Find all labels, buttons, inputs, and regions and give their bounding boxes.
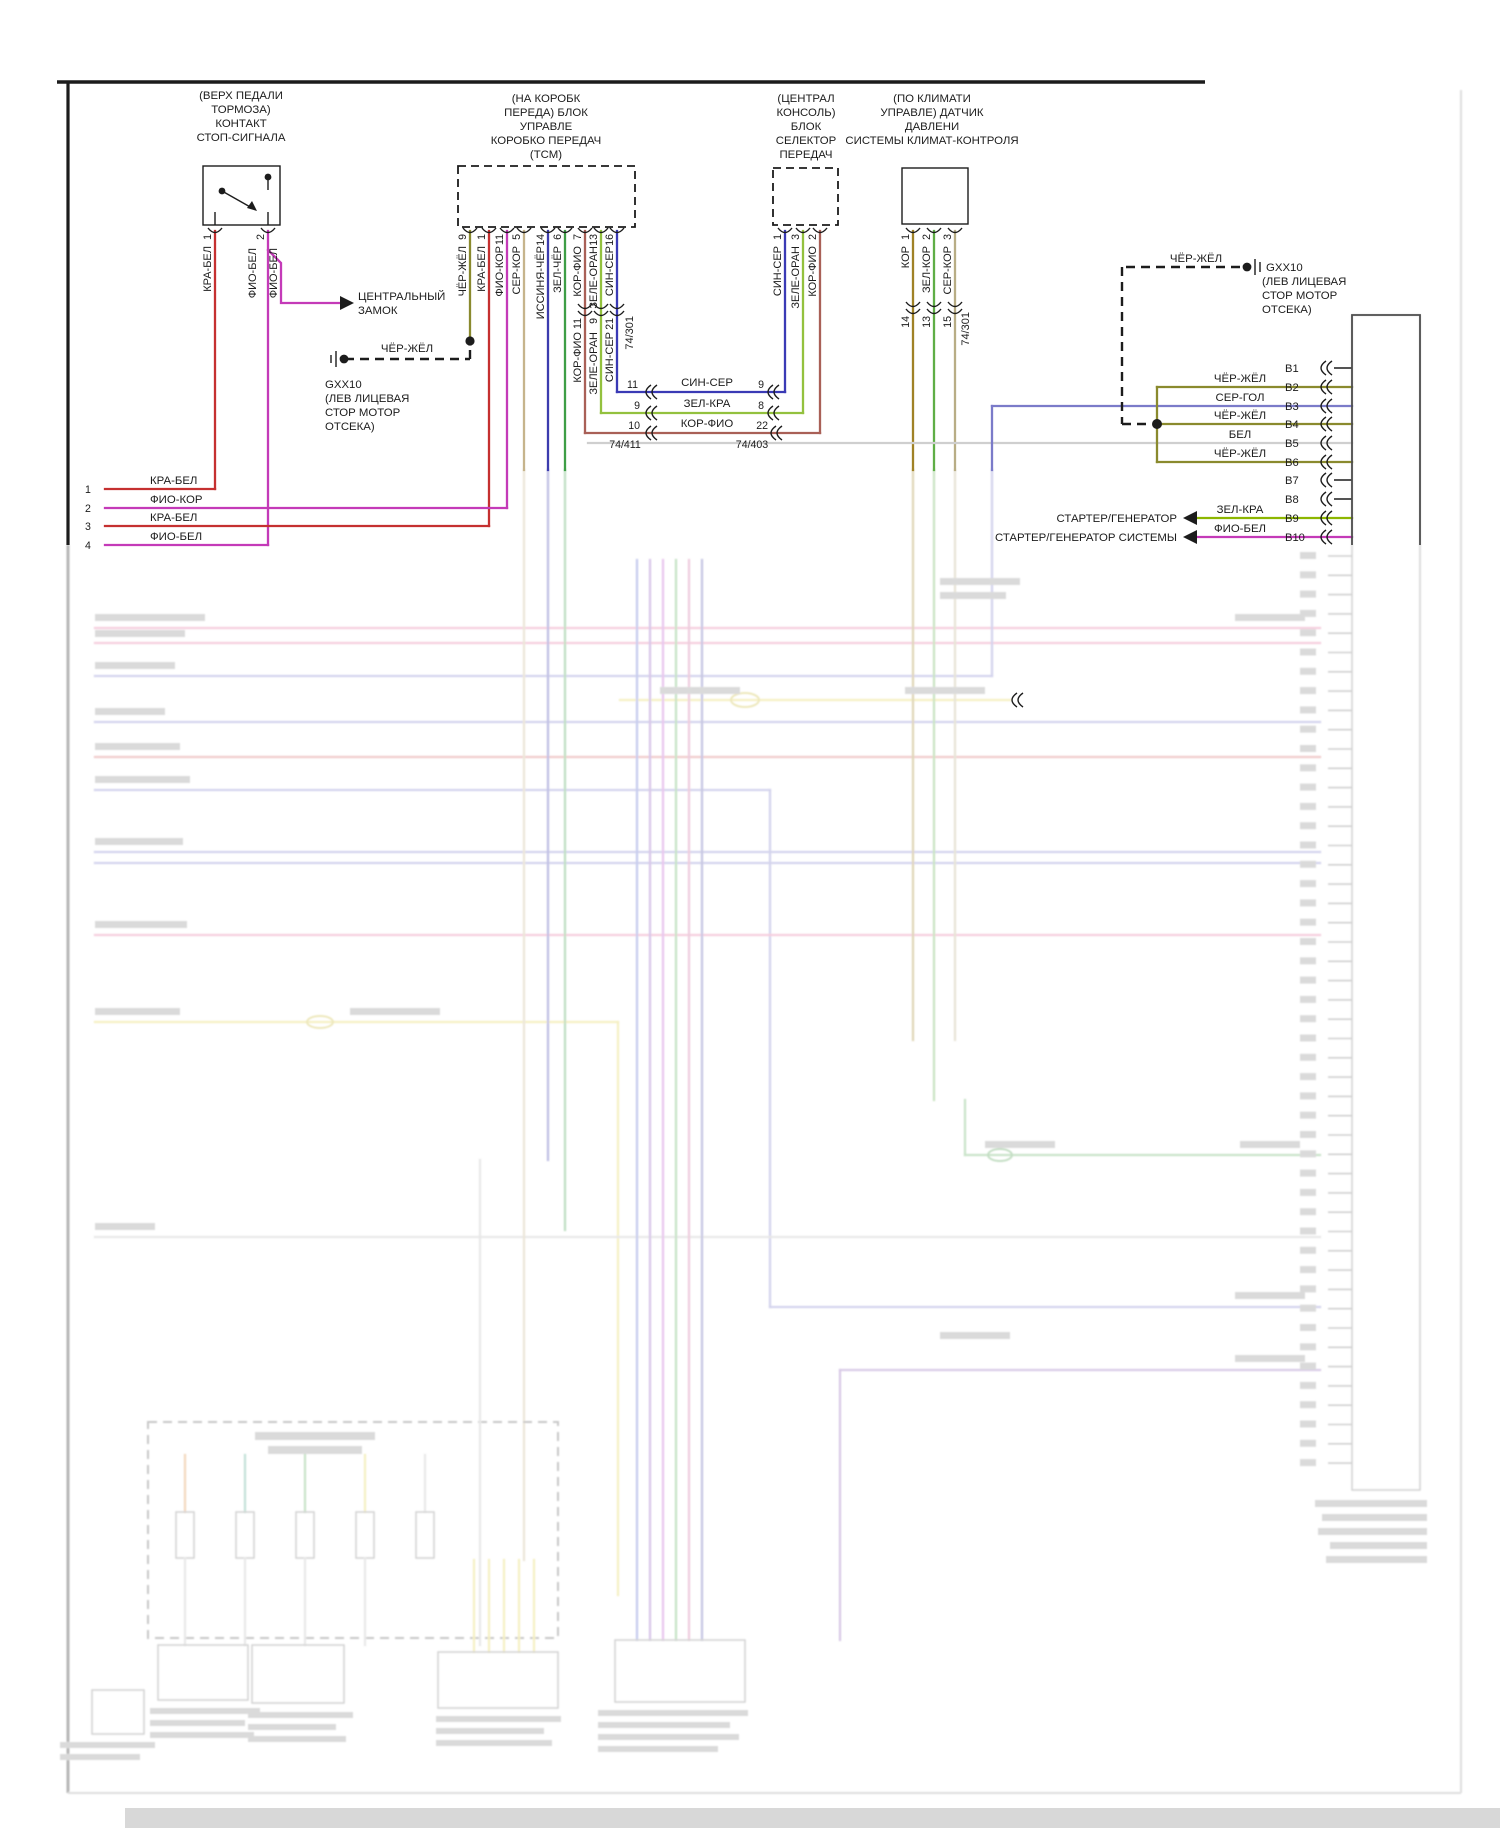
wiring-diagram-page: (ВЕРХ ПЕДАЛИ ТОРМОЗА) КОНТАКТ СТОП-СИГНА…	[0, 0, 1500, 1828]
faded-pin-label	[1300, 745, 1316, 752]
faded-pin-label	[1300, 706, 1316, 713]
connector-mark	[1327, 361, 1332, 375]
pin-number: 3	[790, 234, 802, 240]
wire-label: ФИО-КОР	[150, 494, 202, 506]
connector-id: 74/411	[609, 439, 641, 451]
faded-pin-label	[1300, 1015, 1316, 1022]
connector-mark	[1321, 492, 1326, 506]
climate-title: (ПО КЛИМАТИ	[893, 93, 971, 105]
wire-label: ЗЕЛ-КРА	[1217, 504, 1264, 516]
pin-number: 1	[900, 234, 912, 240]
wire-label: КОР-ФИО	[572, 246, 584, 297]
connector-mark	[1018, 693, 1023, 707]
wire-label: КОР-ФИО	[572, 332, 584, 383]
wire-label: ЗЕЛ-КОР	[921, 246, 933, 293]
pin-number: 6	[552, 234, 564, 240]
wire-label: КРА-БЕЛ	[202, 246, 214, 292]
faded-pin-label	[1300, 1401, 1316, 1408]
wire-label: КОР-ФИО	[681, 418, 734, 430]
faded-pin-label	[1300, 1266, 1316, 1273]
starter-generator-system-label: СТАРТЕР/ГЕНЕРАТОР СИСТЕМЫ	[995, 532, 1177, 544]
pin-number: 2	[921, 234, 933, 240]
diagram-canvas: (ВЕРХ ПЕДАЛИ ТОРМОЗА) КОНТАКТ СТОП-СИГНА…	[0, 0, 1500, 1828]
pin-number: 11	[494, 234, 506, 245]
wire-label: КОР-ФИО	[807, 246, 819, 297]
brake-switch-title: ТОРМОЗА)	[211, 104, 271, 116]
wire-label: ФИО-БЕЛ	[268, 248, 280, 298]
faded-pin-label	[1300, 1131, 1316, 1138]
labels: (ВЕРХ ПЕДАЛИ ТОРМОЗА) КОНТАКТ СТОП-СИГНА…	[85, 90, 1346, 552]
faded-pin-label	[1300, 1035, 1316, 1042]
ground-name: GXX10	[325, 379, 362, 391]
faded-pin-label	[1300, 1150, 1316, 1157]
splice-pin: 8	[758, 400, 764, 412]
connector-mark	[1327, 473, 1332, 487]
wire-label: ЧЁР-ЖЁЛ	[1214, 410, 1266, 422]
central-lock-label: ЗАМОК	[358, 305, 398, 317]
pin-number: 1	[476, 234, 488, 240]
ecu-connector-box	[1352, 315, 1420, 545]
b-pin: B8	[1285, 494, 1299, 506]
wire-label: ЗЕЛЕ-ОРАН	[588, 332, 600, 395]
tcm-title: УПРАВЛЕ	[520, 121, 573, 133]
ground-name: GXX10	[1266, 262, 1303, 274]
row-number: 4	[85, 540, 91, 552]
b-pin: B1	[1285, 363, 1299, 375]
wire-label: СИН-СЕР	[604, 246, 616, 296]
connector-id: 74/403	[736, 439, 769, 451]
connector-id: 74/301	[960, 312, 972, 346]
tcm-box	[458, 166, 635, 227]
pin-number: 14	[900, 316, 912, 328]
wire-label: КРА-БЕЛ	[150, 475, 197, 487]
splice-pin: 11	[627, 379, 638, 391]
b-pin: B7	[1285, 475, 1299, 487]
pin-number: 5	[511, 234, 523, 240]
faded-pin-label	[1300, 1459, 1316, 1466]
faded-pin-label	[1300, 957, 1316, 964]
wire-label: ЗЕЛЕ-ОРАН	[790, 246, 802, 309]
wire-label: ЧЁР-ЖЁЛ	[381, 343, 433, 355]
ground-location: (ЛЕВ ЛИЦЕВАЯ	[325, 393, 409, 405]
faded-pin-label	[1300, 803, 1316, 810]
selector-title: БЛОК	[791, 121, 822, 133]
splice-pin: 10	[628, 420, 640, 432]
junction-dot	[465, 336, 474, 345]
faded-pin-label	[1300, 764, 1316, 771]
wire-label: СЕР-КОР	[942, 246, 954, 294]
wire-label: БЕЛ	[1229, 429, 1252, 441]
faded-pin-label	[1300, 880, 1316, 887]
climate-sensor-box	[902, 168, 968, 224]
b-pin: B9	[1285, 513, 1299, 525]
faded-pin-label	[1300, 1092, 1316, 1099]
tcm-title: КОРОБКО ПЕРЕДАЧ	[491, 135, 602, 147]
junction-dot	[1152, 419, 1162, 429]
climate-title: СИСТЕМЫ КЛИМАТ-КОНТРОЛЯ	[845, 135, 1018, 147]
faded-pin-label	[1300, 822, 1316, 829]
pin-number: 2	[807, 234, 819, 240]
connector-mark	[1327, 492, 1332, 506]
faded-pin-label	[1300, 668, 1316, 675]
wire-label: ФИО-БЕЛ	[150, 531, 202, 543]
pin-number: 13	[921, 316, 933, 328]
faded-pin-label	[1300, 784, 1316, 791]
faded-pin-label	[1300, 726, 1316, 733]
b-pin: B10	[1285, 532, 1305, 544]
faded-pin-label	[1300, 899, 1316, 906]
faded-pin-label	[1300, 977, 1316, 984]
faded-pin-label	[1300, 571, 1316, 578]
ground-location: СТОР МОТОР	[1262, 290, 1337, 302]
pin-number: 14	[535, 234, 547, 246]
wire-label: КОР	[900, 246, 912, 268]
faded-pin-label	[1300, 1305, 1316, 1312]
wire-label: СЕР-КОР	[511, 246, 523, 294]
wire-label: СЕР-ГОЛ	[1216, 392, 1265, 404]
faded-lower-section	[60, 90, 1461, 1793]
faded-pin-label	[1300, 1189, 1316, 1196]
pin-number: 3	[942, 234, 954, 240]
faded-pin-label	[1300, 1228, 1316, 1235]
wire-label: СИН-СЕР	[681, 377, 733, 389]
faded-pin-label	[1300, 687, 1316, 694]
wire-label: ЗЕЛ-ЧЁР	[552, 246, 564, 293]
faded-pin-label	[1300, 1247, 1316, 1254]
wire-label: ЗЕЛ-КРА	[684, 398, 731, 410]
wire-label: СИН-СЕР	[772, 246, 784, 296]
wire-label: ЧЁР-ЖЁЛ	[457, 246, 469, 296]
switch-symbol	[215, 174, 271, 225]
next-page-edge	[125, 1808, 1500, 1828]
wire-label: ЗЕЛЕ-ОРАН	[588, 246, 600, 309]
faded-pin-label	[1300, 938, 1316, 945]
tcm-title: (ТСМ)	[530, 149, 562, 161]
starter-arrow-1	[1183, 511, 1197, 525]
faded-pin-label	[1300, 1073, 1316, 1080]
faded-pin-label	[1300, 1382, 1316, 1389]
wire-label: ЧЁР-ЖЁЛ	[1214, 448, 1266, 460]
pin-number: 1	[772, 234, 784, 240]
brake-switch-title: СТОП-СИГНАЛА	[197, 132, 286, 144]
b-pin: B2	[1285, 382, 1299, 394]
starter-arrow-2	[1183, 530, 1197, 544]
pin-number: 16	[604, 234, 616, 246]
selector-box	[773, 168, 838, 225]
splice-pin: 9	[758, 379, 764, 391]
faded-pin-label	[1300, 1208, 1316, 1215]
connector-id: 74/301	[624, 316, 636, 350]
faded-pin-label	[1300, 996, 1316, 1003]
ground-location: ОТСЕКА)	[1262, 304, 1312, 316]
wire-label: ФИО-БЕЛ	[247, 248, 259, 298]
faded-pin-label	[1300, 861, 1316, 868]
pin-number: 11	[572, 318, 584, 329]
faded-pin-label	[1300, 1343, 1316, 1350]
pin-number: 9	[588, 318, 600, 324]
selector-title: (ЦЕНТРАЛ	[777, 93, 834, 105]
ground-location: СТОР МОТОР	[325, 407, 400, 419]
row-number: 2	[85, 503, 91, 515]
central-lock-arrow	[340, 296, 354, 310]
climate-title: ДАВЛЕНИ	[905, 121, 959, 133]
faded-pin-label	[1300, 1440, 1316, 1447]
pin-number: 21	[604, 318, 616, 330]
faded-pin-label	[1300, 1363, 1316, 1370]
row-number: 1	[85, 484, 91, 496]
b-pin: B5	[1285, 438, 1299, 450]
splice-pin: 9	[634, 400, 640, 412]
wire-label: СИН-СЕР	[604, 332, 616, 382]
climate-title: УПРАВЛЕ) ДАТЧИК	[880, 107, 984, 119]
ground-symbol-left	[331, 351, 348, 367]
pin-number: 13	[588, 234, 600, 246]
faded-pin-label	[1300, 1112, 1316, 1119]
b-pin: B3	[1285, 401, 1299, 413]
starter-generator-label: СТАРТЕР/ГЕНЕРАТОР	[1057, 513, 1177, 525]
wire-label: ИССИНЯ-ЧЁР	[535, 246, 547, 319]
pin-number: 2	[255, 234, 267, 240]
ground-symbol-right	[1243, 259, 1260, 275]
row-number: 3	[85, 521, 91, 533]
pin-number: 7	[572, 234, 584, 240]
pin-number: 1	[202, 234, 214, 240]
tcm-title: ПЕРЕДА) БЛОК	[504, 107, 588, 119]
splice-pin: 22	[756, 420, 768, 432]
faded-pin-label	[1300, 629, 1316, 636]
faded-pin-label	[1300, 1054, 1316, 1061]
wire-label: ФИО-БЕЛ	[1214, 523, 1266, 535]
central-lock-label: ЦЕНТРАЛЬНЫЙ	[358, 290, 445, 303]
tcm-title: (НА КОРОБК	[512, 93, 581, 105]
wire-label: КРА-БЕЛ	[476, 246, 488, 292]
faded-pin-label	[1300, 842, 1316, 849]
faded-pin-label	[1300, 552, 1316, 559]
selector-title: СЕЛЕКТОР	[776, 135, 836, 147]
wire-label: ФИО-КОР	[494, 246, 506, 297]
wire-label: ЧЁР-ЖЁЛ	[1170, 253, 1222, 265]
b-pin: B6	[1285, 457, 1299, 469]
selector-title: КОНСОЛЬ)	[776, 107, 835, 119]
brake-switch-title: (ВЕРХ ПЕДАЛИ	[199, 90, 283, 102]
faded-pin-label	[1300, 1324, 1316, 1331]
faded-pin-label	[1300, 1285, 1316, 1292]
wire-label: КРА-БЕЛ	[150, 512, 197, 524]
connector-pin-ticks	[1300, 552, 1352, 1466]
ground-location: ОТСЕКА)	[325, 421, 375, 433]
faded-pin-label	[1300, 1170, 1316, 1177]
faded-pin-label	[1300, 591, 1316, 598]
selector-title: ПЕРЕДАЧ	[780, 149, 833, 161]
faded-pin-label	[1300, 649, 1316, 656]
connector-mark	[1321, 473, 1326, 487]
pin-number: 15	[942, 316, 954, 328]
wire-label: ЧЁР-ЖЁЛ	[1214, 373, 1266, 385]
connector-mark	[1012, 693, 1017, 707]
connector-mark	[1321, 361, 1326, 375]
faded-pin-label	[1300, 919, 1316, 926]
pin-number: 9	[457, 234, 469, 240]
component-boxes	[57, 82, 1420, 545]
b-pin: B4	[1285, 419, 1299, 431]
faded-pin-label	[1300, 1421, 1316, 1428]
brake-switch-title: КОНТАКТ	[215, 118, 266, 130]
ground-location: (ЛЕВ ЛИЦЕВАЯ	[1262, 276, 1346, 288]
